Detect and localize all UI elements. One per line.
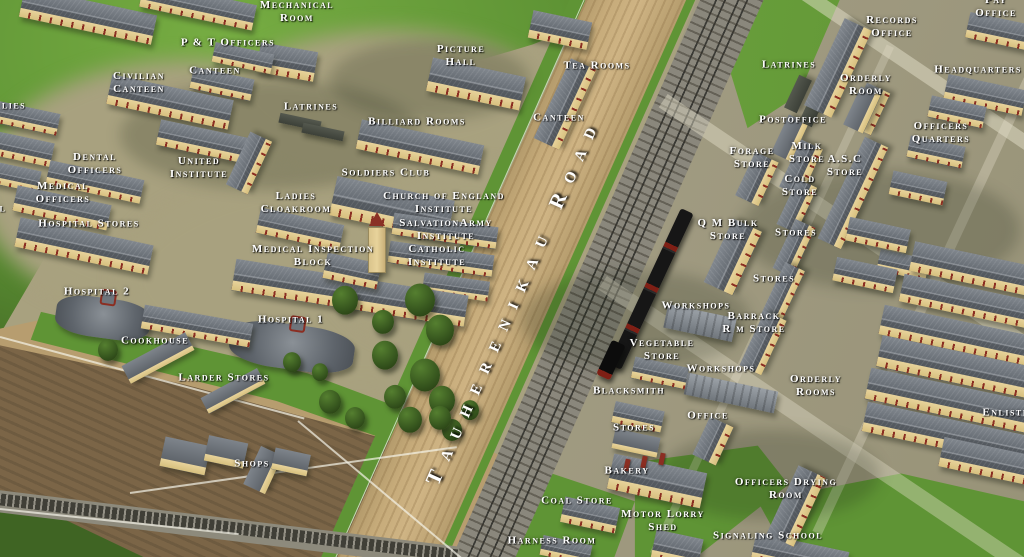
- map-label: Postoffice: [759, 113, 827, 126]
- map-label: Billiard Rooms: [368, 115, 466, 128]
- map-label: Harness Room: [508, 534, 597, 547]
- map-label: A.S.C Store: [827, 153, 863, 179]
- road-name-label: Tauherenikau Road: [421, 111, 608, 489]
- map-label: Records Office: [866, 14, 918, 40]
- map-label: Enliste: [982, 406, 1024, 419]
- map-label: Stores: [753, 272, 795, 285]
- map-label: lies: [2, 99, 26, 112]
- map-label: Workshops: [687, 362, 756, 375]
- map-label: Mechanical Room: [260, 0, 334, 25]
- map-label: Orderly Rooms: [790, 373, 842, 399]
- map-label: Office: [687, 409, 729, 422]
- map-label: Shops: [234, 457, 269, 470]
- map-label: Catholic Institute: [408, 243, 466, 269]
- camp-map: Mechanical RoomP & T OfficersCanteenCivi…: [0, 0, 1024, 557]
- map-label: SalvationArmy Institute: [399, 217, 492, 243]
- map-label: Orderly Room: [840, 72, 892, 98]
- map-label: Q M Bulk Store: [697, 217, 758, 243]
- map-label: Soldiers Club: [342, 166, 431, 179]
- map-label: Cookhouse: [121, 334, 189, 347]
- map-label: Signaling School: [713, 529, 823, 542]
- map-label: Pay Office: [975, 0, 1017, 20]
- map-label: Hospital Stores: [38, 217, 139, 230]
- map-label: Vegetable Store: [630, 337, 695, 363]
- map-label: Blacksmith: [593, 384, 665, 397]
- map-label: Hospital 2: [64, 285, 130, 298]
- map-label: Motor Lorry Shed: [621, 508, 705, 534]
- map-label: Stores: [775, 226, 817, 239]
- map-label: Forage Store: [729, 145, 774, 171]
- map-label: Workshops: [662, 299, 731, 312]
- map-label: Latrines: [762, 58, 816, 71]
- map-label: Coal Store: [541, 494, 613, 507]
- map-label: Officers Quarters: [912, 120, 971, 146]
- map-label: P & T Officers: [181, 36, 275, 49]
- label-layer: Mechanical RoomP & T OfficersCanteenCivi…: [0, 0, 1024, 557]
- map-label: Officers Drying Room: [735, 476, 837, 502]
- map-label: Stores: [613, 421, 655, 434]
- map-label: Larder Stores: [178, 371, 269, 384]
- map-label: United Institute: [170, 155, 228, 181]
- map-label: Bakery: [605, 464, 650, 477]
- map-label: Medical Officers: [36, 180, 91, 206]
- map-label: Canteen: [533, 111, 585, 124]
- map-label: Civilian Canteen: [113, 70, 165, 96]
- map-label: Church of England Institute: [383, 190, 505, 216]
- map-label: Tea Rooms: [563, 59, 630, 72]
- map-label: Cold Store: [782, 173, 818, 199]
- map-label: l: [0, 202, 6, 215]
- map-label: Ladies Cloakroom: [261, 190, 332, 216]
- map-label: Latrines: [284, 100, 338, 113]
- map-label: Canteen: [189, 64, 241, 77]
- map-label: Headquarters: [934, 63, 1022, 76]
- map-label: Picture Hall: [437, 43, 485, 69]
- map-label: Dental Officers: [68, 151, 123, 177]
- map-label: Medical Inspection Block: [252, 243, 374, 269]
- map-label: Hospital 1: [258, 313, 324, 326]
- map-label: Milk Store: [789, 140, 825, 166]
- map-label: Barrack R m Store: [722, 310, 785, 336]
